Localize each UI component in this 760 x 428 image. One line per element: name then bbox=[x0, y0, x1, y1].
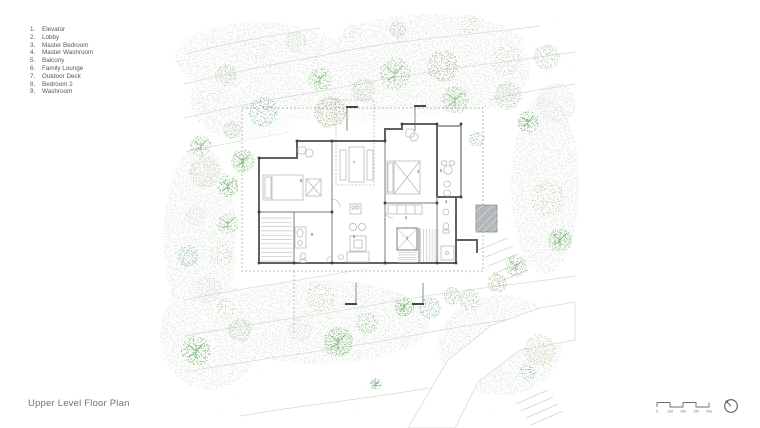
legend-item-label: Balcony bbox=[42, 57, 64, 65]
legend-item-number: 8. bbox=[30, 81, 39, 89]
legend-item-label: Master Bedroom bbox=[42, 42, 89, 50]
scale-label: 3M bbox=[693, 409, 699, 414]
tree bbox=[190, 135, 212, 157]
site-plan-drawing: 123456789 0 1M 2M 3M 5M bbox=[0, 0, 760, 428]
legend-item: 8.Bedroom 2 bbox=[30, 81, 93, 89]
tree bbox=[186, 206, 206, 226]
room-number-bedroom-2: 8 bbox=[300, 178, 303, 183]
tree bbox=[216, 298, 236, 318]
tree bbox=[530, 180, 566, 216]
legend-item-label: Washroom bbox=[42, 88, 72, 96]
tree bbox=[443, 287, 461, 305]
tree bbox=[181, 336, 211, 366]
north-arrow-icon bbox=[725, 400, 738, 413]
tree bbox=[177, 245, 199, 267]
legend-item: 6.Family Lounge bbox=[30, 65, 93, 73]
tree bbox=[459, 289, 481, 311]
tree bbox=[228, 318, 252, 342]
tree bbox=[489, 44, 521, 76]
legend-item: 4.Master Washroom bbox=[30, 49, 93, 57]
legend-item-number: 6. bbox=[30, 65, 39, 73]
legend-item-label: Outdoor Deck bbox=[42, 73, 81, 81]
tree bbox=[196, 88, 220, 112]
tree bbox=[215, 64, 237, 86]
tree bbox=[394, 297, 414, 317]
tree bbox=[534, 44, 560, 70]
tree bbox=[494, 82, 522, 110]
legend-item: 7.Outdoor Deck bbox=[30, 73, 93, 81]
room-number-master-washroom: 4 bbox=[445, 199, 448, 204]
scale-label: 2M bbox=[680, 409, 686, 414]
tree bbox=[517, 111, 539, 133]
legend-item-number: 1. bbox=[30, 26, 39, 34]
tree bbox=[536, 83, 576, 123]
legend-item: 5.Balcony bbox=[30, 57, 93, 65]
scale-bar-shape bbox=[657, 403, 709, 408]
scale-label: 5M bbox=[706, 409, 712, 414]
tree bbox=[231, 149, 255, 173]
tree bbox=[306, 283, 336, 313]
legend-item: 9.Washroom bbox=[30, 88, 93, 96]
legend-item: 2.Lobby bbox=[30, 34, 93, 42]
legend-item: 3.Master Bedroom bbox=[30, 42, 93, 50]
tree bbox=[342, 24, 362, 44]
legend-item-number: 9. bbox=[30, 88, 39, 96]
room-number-elevator: 1 bbox=[406, 235, 409, 240]
tree bbox=[217, 175, 239, 197]
tree bbox=[524, 334, 556, 366]
tree bbox=[505, 255, 527, 277]
tree bbox=[323, 327, 353, 357]
tree bbox=[370, 378, 382, 390]
tree bbox=[308, 67, 332, 91]
room-number-family-lounge: 6 bbox=[353, 234, 356, 239]
tree bbox=[518, 363, 536, 381]
hatched-platform bbox=[476, 205, 497, 232]
tree bbox=[487, 273, 507, 293]
tree bbox=[419, 297, 441, 319]
room-number-lobby: 2 bbox=[405, 215, 408, 220]
tree bbox=[469, 131, 485, 147]
tree bbox=[314, 96, 346, 128]
tree bbox=[248, 97, 278, 127]
tree bbox=[189, 156, 221, 188]
tree bbox=[217, 213, 239, 235]
tree bbox=[194, 276, 222, 304]
tree bbox=[460, 14, 480, 34]
room-number-outdoor-deck: 7 bbox=[353, 160, 356, 165]
legend-item-number: 5. bbox=[30, 57, 39, 65]
legend-item-label: Master Washroom bbox=[42, 49, 93, 57]
legend-item: 1.Elevator bbox=[30, 26, 93, 34]
legend-item-label: Family Lounge bbox=[42, 65, 83, 73]
scale-label: 1M bbox=[667, 409, 673, 414]
legend-item-number: 3. bbox=[30, 42, 39, 50]
tree bbox=[244, 40, 268, 64]
tree bbox=[427, 50, 459, 82]
tree bbox=[441, 86, 469, 114]
scale-bar: 0 1M 2M 3M 5M bbox=[656, 403, 712, 414]
legend-item-number: 2. bbox=[30, 34, 39, 42]
drawing-title: Upper Level Floor Plan bbox=[28, 398, 130, 409]
legend-item-label: Bedroom 2 bbox=[42, 81, 73, 89]
room-number-master-bedroom: 3 bbox=[417, 169, 420, 174]
tree bbox=[379, 58, 411, 90]
tree bbox=[285, 31, 307, 53]
tree bbox=[210, 242, 234, 266]
room-number-washroom: 9 bbox=[311, 232, 314, 237]
scale-label: 0 bbox=[656, 409, 659, 414]
legend-item-label: Lobby bbox=[42, 34, 59, 42]
legend-item-label: Elevator bbox=[42, 26, 65, 34]
legend: 1.Elevator2.Lobby3.Master Bedroom4.Maste… bbox=[30, 26, 93, 96]
room-number-balcony: 5 bbox=[440, 168, 443, 173]
tree bbox=[356, 312, 378, 334]
tree bbox=[389, 21, 407, 39]
floor-plan-sheet: 123456789 0 1M 2M 3M 5M 1.Elevator2.Lobb… bbox=[0, 0, 760, 428]
legend-item-number: 7. bbox=[30, 73, 39, 81]
legend-item-number: 4. bbox=[30, 49, 39, 57]
tree bbox=[548, 228, 572, 252]
tree bbox=[288, 318, 312, 342]
tree bbox=[223, 121, 241, 139]
tree bbox=[351, 78, 375, 102]
